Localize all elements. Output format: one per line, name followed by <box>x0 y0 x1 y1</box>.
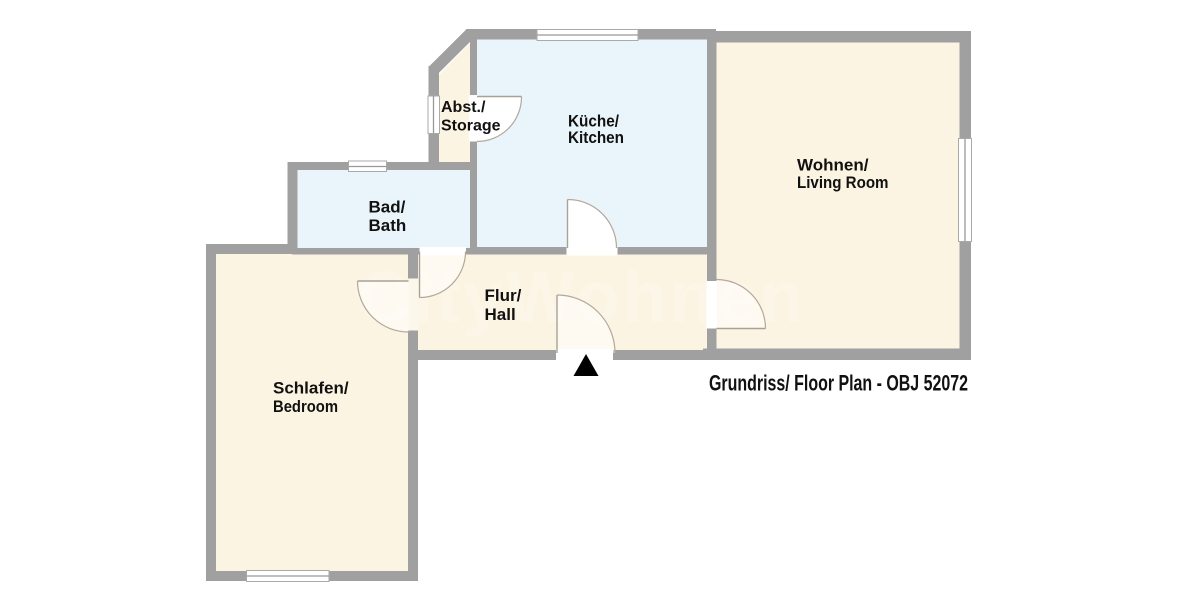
svg-text:Abst./: Abst./ <box>441 99 486 116</box>
svg-text:Kitchen: Kitchen <box>568 128 624 147</box>
svg-text:Bath: Bath <box>369 216 407 235</box>
svg-text:Bad/: Bad/ <box>369 198 406 217</box>
svg-text:Schlafen/: Schlafen/ <box>273 379 349 398</box>
svg-text:Bedroom: Bedroom <box>273 397 338 416</box>
svg-text:Storage: Storage <box>441 118 501 135</box>
svg-text:Wohnen/: Wohnen/ <box>797 156 869 175</box>
svg-text:Flur/: Flur/ <box>485 286 522 305</box>
svg-text:Hall: Hall <box>485 305 516 324</box>
svg-text:Living Room: Living Room <box>797 173 889 192</box>
svg-text:Grundriss/ Floor Plan - OBJ 52: Grundriss/ Floor Plan - OBJ 52072 <box>709 371 968 396</box>
